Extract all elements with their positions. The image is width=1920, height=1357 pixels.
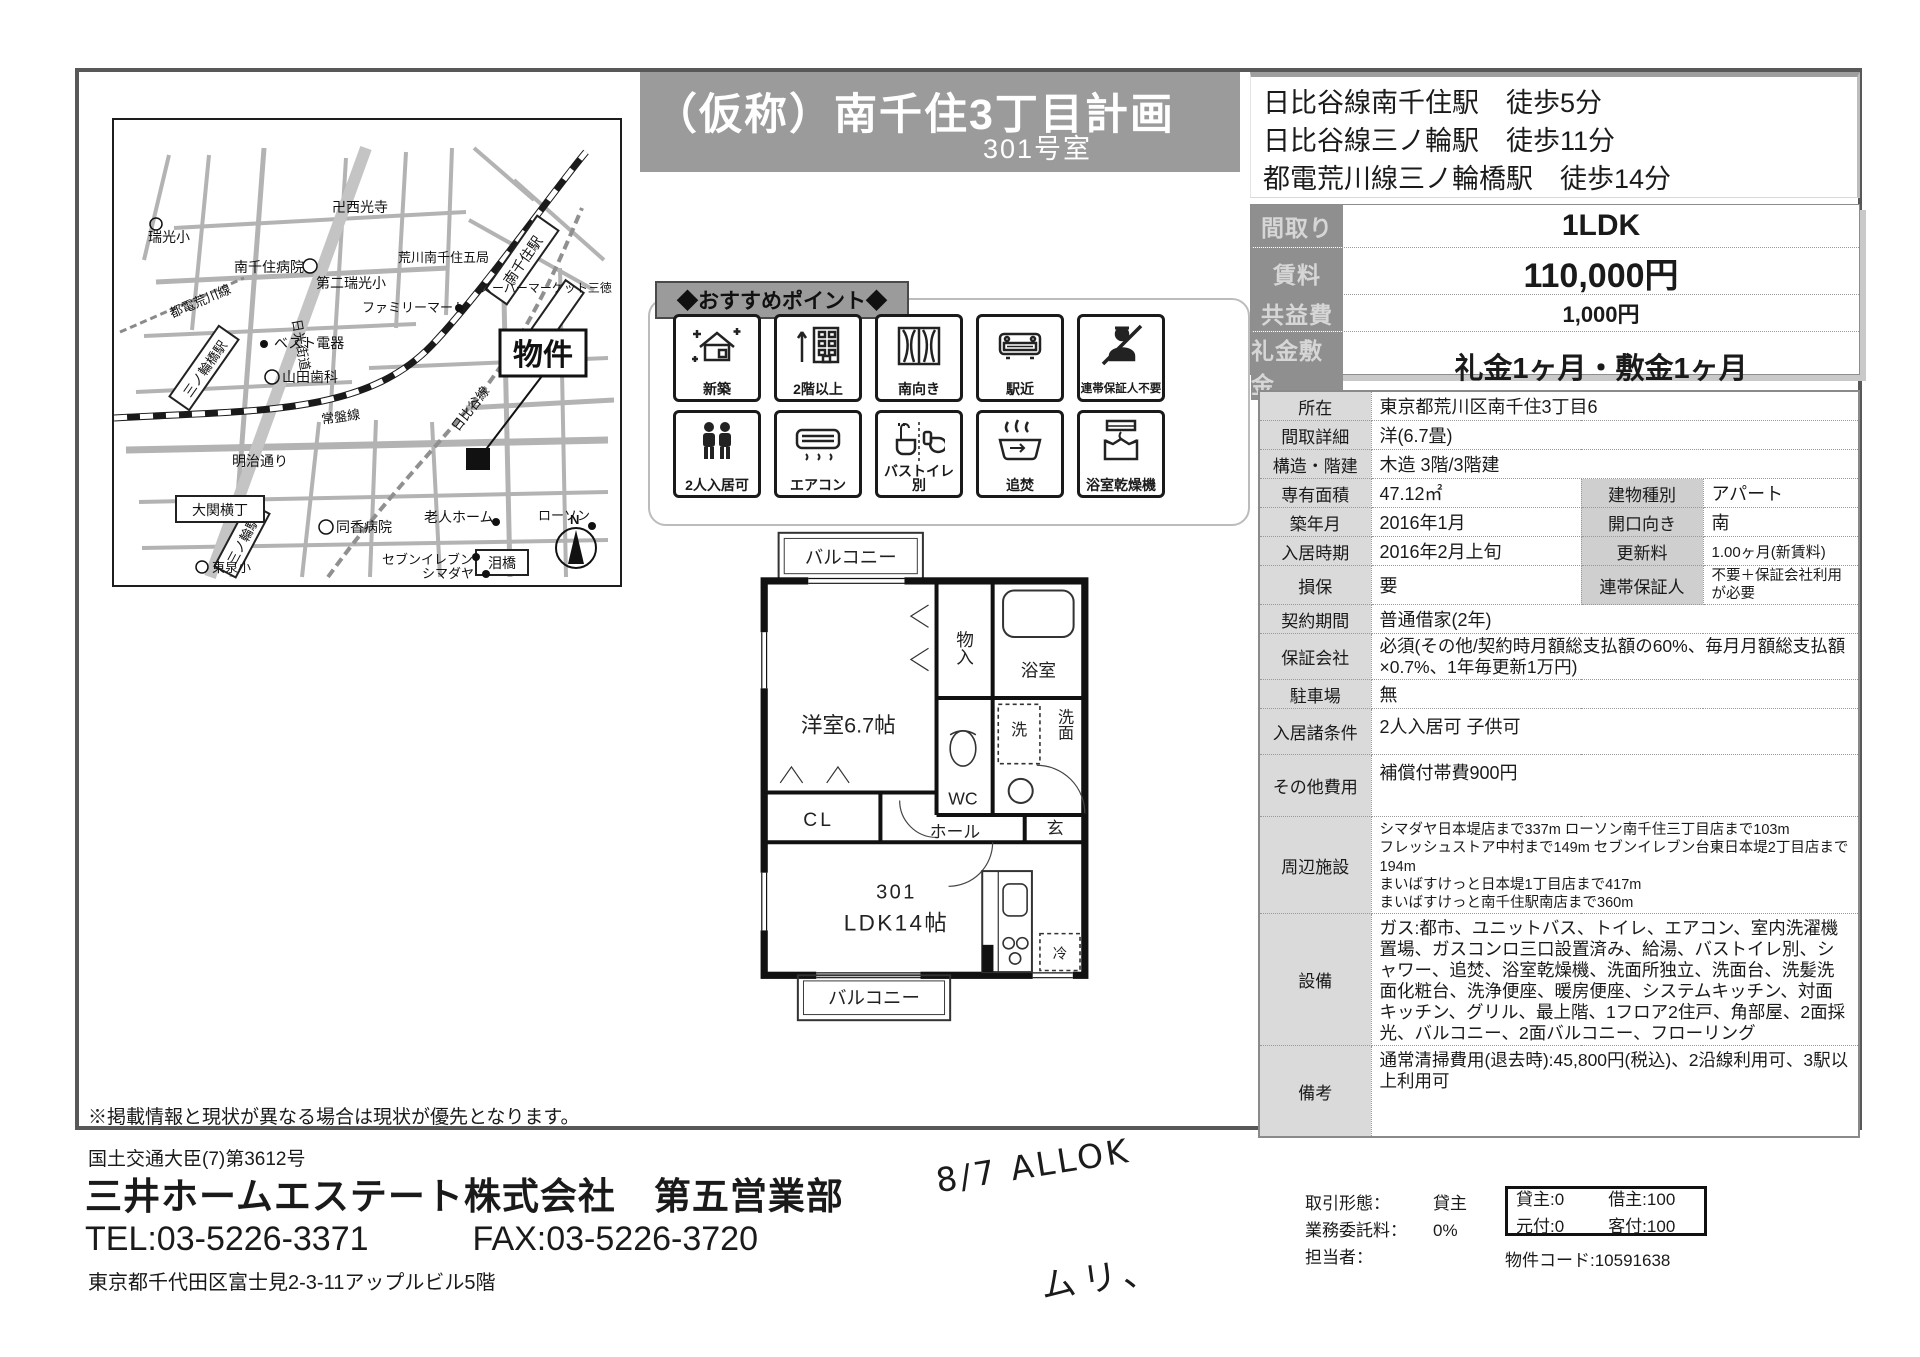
bathroom-dryer-icon bbox=[1095, 418, 1147, 466]
detail-label: 設備 bbox=[1259, 913, 1371, 1045]
map-label: セブンイレブン bbox=[382, 552, 473, 567]
fax-number: FAX:03-5226-3720 bbox=[473, 1220, 758, 1258]
aircon-icon bbox=[792, 418, 844, 466]
floorplan: バルコニー bbox=[748, 528, 1093, 1030]
access-line: 都電荒川線三ノ輪橋駅 徒歩14分 bbox=[1263, 161, 1845, 199]
detail-value: 1.00ヶ月(新賃料) bbox=[1703, 537, 1859, 566]
map-label: 大関横丁 bbox=[192, 502, 248, 518]
room-label: 洋室6.7帖 bbox=[801, 712, 896, 737]
map-label: 山田歯科 bbox=[282, 369, 338, 385]
area-map-box: 都電荒川線 常盤線 日比谷線 日光街道 明治通り 南千住駅 三ノ輪橋駅 三ノ輪駅… bbox=[112, 118, 622, 587]
point-label: 南向き bbox=[878, 382, 960, 397]
station-access-box: 日比谷線南千住駅 徒歩5分 日比谷線三ノ輪駅 徒歩11分 都電荒川線三ノ輪橋駅 … bbox=[1250, 72, 1860, 198]
area-map: 都電荒川線 常盤線 日比谷線 日光街道 明治通り 南千住駅 三ノ輪橋駅 三ノ輪駅… bbox=[114, 120, 616, 581]
map-label: スーパーマーケット三徳 bbox=[480, 280, 612, 295]
point-label: エアコン bbox=[777, 478, 859, 493]
detail-value: 47.12㎡ bbox=[1371, 479, 1581, 508]
company-name: 三井ホームエステート株式会社 第五営業部 bbox=[85, 1166, 844, 1220]
detail-value: ガス:都市、ユニットバス、トイレ、エアコン、室内洗濯機置場、ガスコンロ三口設置済… bbox=[1371, 913, 1859, 1045]
point-bath-dryer: 浴室乾燥機 bbox=[1077, 410, 1165, 498]
point-south-facing: 南向き bbox=[875, 314, 963, 402]
deal-info: 取引形態：貸主 業務委託料：0% 担当者： bbox=[1305, 1190, 1467, 1272]
map-label: シマダヤ bbox=[422, 566, 474, 581]
point-near-station: 駅近 bbox=[976, 314, 1064, 402]
split-cell: 貸主:0 bbox=[1516, 1185, 1608, 1210]
points-grid: 新築 2階以上 南向き bbox=[673, 314, 1165, 498]
detail-table: 所在東京都荒川区南千住3丁目6 間取詳細洋(6.7畳) 構造・階建木造 3階/3… bbox=[1258, 390, 1860, 1138]
detail-label: 建物種別 bbox=[1581, 479, 1703, 508]
map-label: 明治通り bbox=[232, 453, 288, 469]
balcony-bottom-label: バルコニー bbox=[828, 987, 920, 1008]
point-label: 浴室乾燥機 bbox=[1080, 478, 1162, 493]
deal-label: 取引形態： bbox=[1305, 1190, 1433, 1217]
detail-value: 補償付帯費900円 bbox=[1371, 755, 1859, 817]
title-bar: （仮称）南千住3丁目計画 301号室 bbox=[640, 72, 1240, 172]
compass-n: N bbox=[570, 512, 579, 527]
detail-value: 2人入居可 子供可 bbox=[1371, 709, 1859, 755]
detail-value: 洋(6.7畳) bbox=[1371, 421, 1859, 450]
map-label: 同香病院 bbox=[336, 519, 392, 535]
unit-number-label: 301 bbox=[876, 881, 917, 903]
handwritten-note: ムリ、 bbox=[1037, 1242, 1167, 1310]
washer-label: 洗 bbox=[1011, 721, 1027, 739]
detail-value: 要 bbox=[1371, 566, 1581, 605]
room-number: 301号室 bbox=[983, 127, 1092, 166]
map-label: 都電荒川線 bbox=[167, 282, 233, 321]
deal-value: 貸主 bbox=[1433, 1194, 1467, 1213]
detail-value: アパート bbox=[1703, 479, 1859, 508]
detail-label: 構造・階建 bbox=[1259, 450, 1371, 479]
detail-label: 損保 bbox=[1259, 566, 1371, 605]
price-table: 間取り 1LDK 賃料 110,000円 共益費 1,000円 礼金敷金 礼金1… bbox=[1250, 204, 1860, 375]
map-label: 東泉小 bbox=[212, 560, 251, 575]
detail-label: 専有面積 bbox=[1259, 479, 1371, 508]
washroom-label: 洗面 bbox=[1055, 708, 1074, 740]
handwritten-note: 8/7 ALLOK bbox=[933, 1131, 1133, 1200]
map-label: 荒川南千住五局 bbox=[398, 250, 489, 265]
point-label: 追焚 bbox=[979, 478, 1061, 493]
point-label: 新築 bbox=[676, 382, 758, 397]
detail-value: シマダヤ日本堤店まで337m ローソン南千住三丁目店まで103m フレッシュスト… bbox=[1371, 817, 1859, 914]
ldk-label: LDK14帖 bbox=[844, 910, 949, 935]
upper-floor-icon bbox=[792, 322, 844, 370]
point-reheating: 追焚 bbox=[976, 410, 1064, 498]
floorplan-drawing: バルコニー bbox=[748, 528, 1093, 1025]
price-row-label: 賃料 bbox=[1251, 248, 1343, 297]
detail-label: 開口向き bbox=[1581, 508, 1703, 537]
detail-label: 更新料 bbox=[1581, 537, 1703, 566]
map-label: 第二瑞光小 bbox=[316, 275, 386, 291]
access-line: 日比谷線南千住駅 徒歩5分 bbox=[1263, 85, 1845, 123]
detail-value: 東京都荒川区南千住3丁目6 bbox=[1371, 391, 1859, 421]
split-cell: 借主:100 bbox=[1608, 1185, 1696, 1210]
separate-bath-toilet-icon bbox=[893, 418, 945, 466]
detail-label: その他費用 bbox=[1259, 755, 1371, 817]
point-aircon: エアコン bbox=[774, 410, 862, 498]
split-cell: 客付:100 bbox=[1608, 1212, 1696, 1237]
deal-row: 取引形態：貸主 bbox=[1305, 1190, 1467, 1217]
detail-value: 無 bbox=[1371, 680, 1859, 709]
commission-split-box: 貸主:0 借主:100 元付:0 客付:100 bbox=[1505, 1186, 1707, 1236]
map-label: 瑞光小 bbox=[148, 229, 190, 245]
detail-label: 保証会社 bbox=[1259, 634, 1371, 680]
kitchen bbox=[982, 871, 1032, 972]
detail-value: 2016年1月 bbox=[1371, 508, 1581, 537]
point-upper-floor: 2階以上 bbox=[774, 314, 862, 402]
page-title: （仮称）南千住3丁目計画 bbox=[654, 80, 1226, 142]
bath-label: 浴室 bbox=[1021, 660, 1056, 680]
map-label: ベスト電器 bbox=[274, 335, 344, 351]
detail-label: 周辺施設 bbox=[1259, 817, 1371, 914]
property-code: 物件コード:10591638 bbox=[1505, 1246, 1670, 1271]
detail-label: 所在 bbox=[1259, 391, 1371, 421]
station-box: 三ノ輪橋駅 bbox=[170, 326, 239, 410]
storage-label: 物入 bbox=[955, 630, 975, 666]
no-guarantor-icon bbox=[1095, 322, 1147, 370]
rent-value: 110,000円 bbox=[1343, 248, 1859, 297]
detail-label: 間取詳細 bbox=[1259, 421, 1371, 450]
map-label: 常盤線 bbox=[320, 407, 361, 427]
company-contact: TEL:03-5226-3371FAX:03-5226-3720 bbox=[85, 1220, 758, 1259]
detail-label: 築年月 bbox=[1259, 508, 1371, 537]
detail-value: 普通借家(2年) bbox=[1371, 605, 1859, 634]
south-facing-icon bbox=[893, 322, 945, 370]
point-label: バストイレ別 bbox=[878, 464, 960, 493]
near-station-icon bbox=[994, 322, 1046, 370]
detail-value: 南 bbox=[1703, 508, 1859, 537]
layout-value: 1LDK bbox=[1343, 205, 1859, 247]
deal-value: 0% bbox=[1433, 1221, 1458, 1240]
map-label: ローソン bbox=[538, 508, 590, 523]
deal-row: 担当者： bbox=[1305, 1244, 1467, 1271]
entrance-label: 玄 bbox=[1047, 819, 1064, 838]
detail-label: 備考 bbox=[1259, 1045, 1371, 1137]
map-label: ファミリーマート bbox=[362, 300, 466, 315]
reheating-bath-icon bbox=[994, 418, 1046, 466]
price-row-label: 共益費 bbox=[1251, 295, 1343, 331]
disclaimer-note: ※掲載情報と現状が異なる場合は現状が優先となります。 bbox=[88, 1102, 580, 1129]
point-no-guarantor: 連帯保証人不要 bbox=[1077, 314, 1165, 402]
deal-label: 担当者： bbox=[1305, 1244, 1433, 1271]
tel-number: TEL:03-5226-3371 bbox=[85, 1220, 369, 1258]
point-separate-bath: バストイレ別 bbox=[875, 410, 963, 498]
detail-value: 2016年2月上旬 bbox=[1371, 537, 1581, 566]
balcony-top-label: バルコニー bbox=[805, 546, 897, 567]
point-label: 連帯保証人不要 bbox=[1080, 383, 1162, 395]
detail-value: 木造 3階/3階建 bbox=[1371, 450, 1859, 479]
detail-label: 契約期間 bbox=[1259, 605, 1371, 634]
new-build-icon bbox=[691, 322, 743, 370]
map-label: 老人ホーム bbox=[424, 509, 494, 525]
point-two-tenants: 2人入居可 bbox=[673, 410, 761, 498]
detail-value: 必須(その他/契約時月額総支払額の60%、毎月月額総支払額×0.7%、1年毎更新… bbox=[1371, 634, 1859, 680]
hall-label: ホール bbox=[930, 822, 981, 841]
split-cell: 元付:0 bbox=[1516, 1212, 1608, 1237]
deal-row: 業務委託料：0% bbox=[1305, 1217, 1467, 1244]
access-line: 日比谷線三ノ輪駅 徒歩11分 bbox=[1263, 123, 1845, 161]
price-row-label: 間取り bbox=[1251, 205, 1343, 247]
detail-label: 連帯保証人 bbox=[1581, 566, 1703, 605]
property-label: 物件 bbox=[513, 339, 573, 372]
detail-label: 駐車場 bbox=[1259, 680, 1371, 709]
detail-label: 入居時期 bbox=[1259, 537, 1371, 566]
two-tenants-icon bbox=[691, 418, 743, 466]
wc-label: WC bbox=[948, 789, 978, 809]
point-new-build: 新築 bbox=[673, 314, 761, 402]
point-label: 2人入居可 bbox=[676, 478, 758, 493]
fee-value: 1,000円 bbox=[1343, 295, 1859, 331]
closet-label: CL bbox=[803, 810, 834, 831]
map-label: 泪橋 bbox=[488, 555, 516, 571]
map-label: 卍西光寺 bbox=[332, 199, 388, 215]
detail-value: 通常清掃費用(退去時):45,800円(税込)、2沿線利用可、3駅以上利用可 bbox=[1371, 1045, 1859, 1137]
point-label: 駅近 bbox=[979, 382, 1061, 397]
detail-label: 入居諸条件 bbox=[1259, 709, 1371, 755]
map-label: 南千住病院 bbox=[234, 259, 304, 275]
detail-value: 不要＋保証会社利用が必要 bbox=[1703, 566, 1859, 605]
deal-label: 業務委託料： bbox=[1305, 1217, 1433, 1244]
company-address: 東京都千代田区富士見2-3-11アップルビル5階 bbox=[88, 1266, 495, 1295]
point-label: 2階以上 bbox=[777, 382, 859, 397]
fridge-label: 冷 bbox=[1053, 945, 1067, 962]
